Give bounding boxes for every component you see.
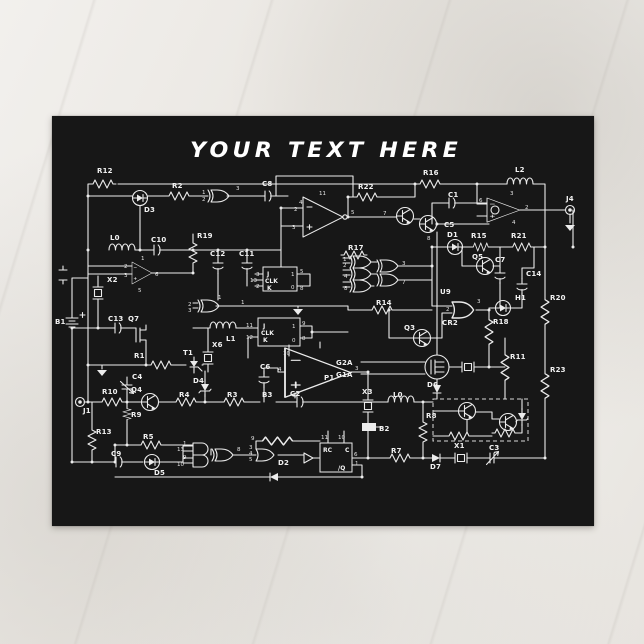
diode-bottom [266,473,282,481]
opamp-main [303,197,343,237]
crystal-mid [458,362,478,372]
label-R16: R16 [423,169,439,177]
resistor-R18 [485,316,493,348]
pin: 10 [283,351,290,357]
pin: 9 [302,321,306,327]
xor-gate-bottom [212,449,233,461]
capacitor-C1 [443,198,460,208]
diode-D3 [133,191,148,206]
pin: 4 [299,200,303,206]
pin: 5 [300,269,304,275]
transistor-q-a [397,208,414,225]
label-J1: J1 [82,407,91,415]
resistor-R21 [510,243,533,251]
mosfet-G2A-G1A [425,355,449,379]
pin: 2 [256,284,260,290]
label-X3: X3 [362,388,373,396]
label-L0a: L0 [110,234,120,242]
jk1-clk: CLK [265,278,278,285]
resistor-R5 [138,441,164,449]
capacitor-C14 [517,278,527,295]
xor-gate-1 [350,256,371,268]
inductor-L0a [109,244,135,250]
label-X2: X2 [107,276,118,284]
pin: 3 [477,299,481,305]
pin: 3 [124,273,128,279]
xor-gate-2 [350,268,371,280]
resistor-R15 [471,243,491,251]
label-C13: C13 [108,315,123,323]
capacitor-C2 [291,397,308,407]
pin: 13 [177,447,184,453]
jk1-k: K [267,285,272,292]
label-R21: R21 [511,232,527,240]
xor-gate-3 [350,280,371,292]
postcard: YOUR TEXT HERE [52,116,594,526]
label-CR2: CR2 [442,319,458,327]
label-D1: D1 [447,231,458,239]
label-C1: C1 [448,191,458,199]
label-C2: C2 [290,390,300,398]
capacitor-C6 [259,371,269,388]
label-D3: D3 [144,206,155,214]
pin: 8 [302,336,306,342]
pin: 3 [292,225,296,231]
pin: 0 [291,285,295,291]
resistor-R7 [387,454,413,462]
jk1-j: J [266,271,269,278]
resistor-9 [258,437,297,445]
label-R14: R14 [376,299,392,307]
label-R12: R12 [97,167,113,175]
transistor-box-b [500,414,517,431]
battery-B1 [66,312,85,333]
pin-numbers: 7 11 5 2 3 4 1 2 3 3 6 2 4 8 1 2 4 8 3 7… [124,186,529,468]
pin: 11 [321,435,328,441]
label-R5: R5 [143,433,154,441]
label-R18: R18 [493,318,509,326]
pin: 2 [525,205,529,211]
resistor-R16 [417,180,443,188]
pin: 6 [479,198,483,204]
label-R22: R22 [358,183,374,191]
label-C12: C12 [210,250,225,258]
label-C8: C8 [262,180,272,188]
resistor-R20 [541,296,549,328]
crystal-bottom [451,453,471,463]
pin: 9 [183,455,187,461]
label-R4: R4 [179,391,190,399]
capacitor-C9 [110,457,127,467]
pin: 1 [218,295,222,301]
transistor-q-b [420,216,437,233]
label-U9: U9 [440,288,451,296]
label-R13: R13 [96,428,112,436]
label-C6: C6 [260,363,270,371]
label-P1: P1 [324,374,334,382]
pin: 1 [241,300,245,306]
capacitor-C11 [242,257,252,274]
pin: 2 [446,307,450,313]
label-B1: B1 [55,318,66,326]
inductor-L1 [210,322,236,328]
resistor-R10 [99,398,125,406]
mosfet-Q7 [136,325,146,345]
pin: 8 [300,286,304,292]
pin: 3 [236,186,240,192]
label-X1: X1 [454,442,465,450]
jk2-j: J [262,323,265,330]
pin: 11 [246,323,253,329]
capacitor-C3-variable [485,452,499,465]
diode-D5 [145,455,160,470]
pin: 3 [355,366,359,372]
pin: 3 [510,191,514,197]
crystal-X6 [203,348,213,368]
label-R9: R9 [131,411,142,419]
circuit-schematic: YOUR TEXT HERE [52,116,594,526]
pin: 1 [355,461,359,467]
pin: 6 [354,452,358,458]
resistor-R2 [166,192,192,200]
pin: 4 [512,220,516,226]
label-Q4: Q4 [131,386,142,394]
transistor-Q4 [142,394,159,411]
pin: 5 [249,457,253,463]
label-C7: C7 [495,256,505,264]
label-C3: C3 [489,444,499,452]
pin: 5 [138,288,142,294]
pin: 8 [344,286,348,292]
pin: 4 [278,367,282,373]
label-D4: D4 [193,377,204,385]
thyristor-T1 [190,357,202,373]
pin: 2 [294,207,298,213]
label-T1: T1 [183,349,193,357]
label-C4: C4 [132,373,142,381]
resistor-X1 [446,432,472,440]
label-R10: R10 [102,388,118,396]
label-R1: R1 [134,352,145,360]
component-B2 [362,423,376,431]
crystal-X3 [363,396,373,416]
pin: 2 [124,264,128,270]
pin: 11 [319,191,326,197]
diode-H1 [496,301,511,316]
label-R17: R17 [348,244,364,252]
resistor-R3 [221,398,247,406]
label-D6: D6 [427,381,438,389]
resistor-R1 [148,361,174,369]
label-D2: D2 [278,459,289,467]
pin: 1 [202,190,206,196]
jk2-k: K [263,337,268,344]
xor-gate-top [208,190,229,202]
label-C5: C5 [444,221,454,229]
pin: 2 [343,263,347,269]
pin: 2 [202,197,206,203]
label-R23: R23 [550,366,566,374]
label-B2: B2 [379,425,390,433]
label-H1: H1 [515,294,526,302]
or-gate-U9 [452,302,474,318]
capacitor-C12 [213,257,223,274]
pin: 1 [291,272,295,278]
resistor-R22 [354,193,380,201]
label-C11: C11 [239,250,254,258]
label-C14: C14 [526,270,541,278]
ground-mid [293,309,303,315]
resistor-R9 [123,407,131,421]
label-Q5: Q5 [472,253,483,261]
rc-c: C [345,447,350,454]
diode-D7 [428,454,444,462]
label-R7: R7 [391,447,402,455]
label-L0b: L0 [393,391,403,399]
label-L2: L2 [515,166,525,174]
pin: 10 [177,462,184,468]
resistor-R14 [369,306,395,314]
crystal-X2 [93,283,103,303]
inductor-L2 [507,178,533,184]
opamp-output [487,198,520,222]
pin: 8 [427,236,431,242]
capacitor-C8 [259,191,276,201]
opamp-output-symbol [491,206,499,214]
pin: 1 [141,256,145,262]
resistor-R4 [173,398,199,406]
pin: 12 [246,335,253,341]
jack-J1 [76,398,85,407]
xor-gate-5 [377,274,398,286]
label-R20: R20 [550,294,566,302]
label-X6: X6 [212,341,223,349]
rc-qbar: /Q [338,465,345,472]
pin: 7 [383,211,387,217]
pin: 1 [292,324,296,330]
resistor-R13 [88,427,96,453]
label-R3: R3 [227,391,238,399]
opamp-small [132,262,152,284]
label-R2: R2 [172,182,183,190]
pin: 4 [344,274,348,280]
resistor-R19 [189,240,197,266]
label-R8: R8 [426,412,437,420]
label-J4: J4 [565,195,574,203]
zener-in-box [516,408,528,426]
label-Q3: Q3 [404,324,415,332]
label-L1: L1 [226,335,236,343]
pin: 9 [251,436,255,442]
capacitor-C13 [109,323,126,333]
label-R19: R19 [197,232,213,240]
pin: 3 [188,308,192,314]
pin: 3 [402,261,406,267]
pin: 8 [237,447,241,453]
label-G2A: G2A [336,359,353,367]
label-D7: D7 [430,463,441,471]
capacitor-C7 [495,267,505,284]
pin: 7 [402,280,406,286]
label-Q7: Q7 [128,315,139,323]
or-gate-D2 [256,449,274,461]
label-D5: D5 [154,469,165,477]
label-C9: C9 [111,450,121,458]
pin: 10 [338,435,345,441]
transistor-box-a [459,403,476,420]
diode-D1 [448,240,463,255]
pin: 6 [155,272,159,278]
postcard-title: YOUR TEXT HERE [190,138,462,162]
ground-left [97,370,107,376]
resistor-R23 [541,370,549,402]
label-R11: R11 [510,353,526,361]
label-C10: C10 [151,236,166,244]
jk2-clk: CLK [261,330,274,337]
label-G1A: G1A [336,371,353,379]
label-R15: R15 [471,232,487,240]
pin: 0 [292,338,296,344]
resistor-R12 [90,180,116,188]
resistor-R8 [419,419,427,445]
dashed-subcircuit-box [433,399,528,441]
and-gate-1 [193,443,208,455]
pin: 5 [351,210,355,216]
xor-gate-4 [377,260,398,272]
capacitor-C10 [148,245,165,255]
rc-label: RC [323,447,333,454]
and-gate-2 [193,455,208,467]
buffer-gate [304,453,313,463]
label-B3: B3 [262,391,273,399]
